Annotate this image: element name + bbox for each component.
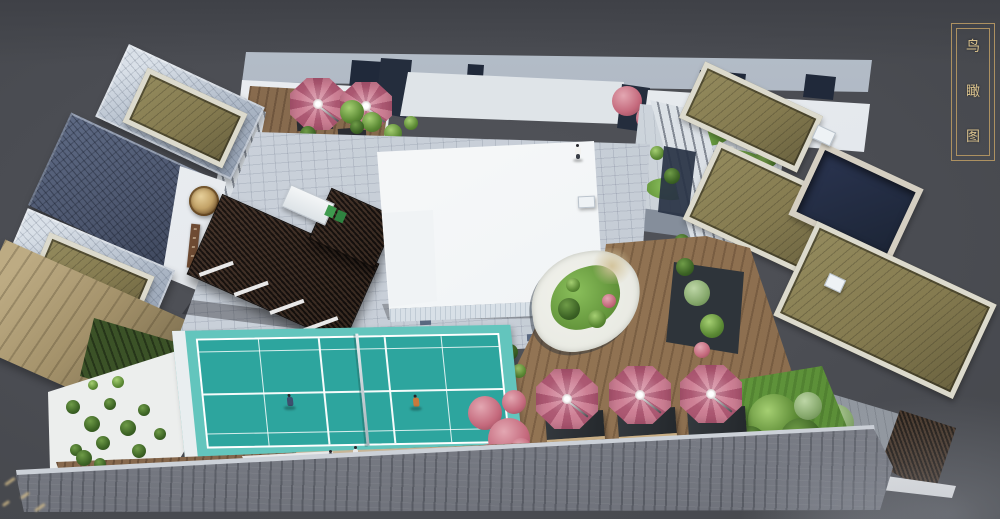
badminton-court (172, 325, 524, 461)
shrub (362, 112, 382, 132)
title-plaque: 鸟 瞰 图 (951, 23, 995, 161)
shrub (588, 310, 606, 328)
vine (154, 428, 166, 440)
pink-shrub (694, 342, 710, 358)
vine (66, 400, 80, 414)
player (284, 394, 296, 410)
vine (138, 404, 150, 416)
court-line (207, 428, 507, 434)
large-tree (794, 392, 822, 420)
pink-parasol (609, 366, 671, 424)
vine (120, 420, 136, 436)
ornamental-grass (590, 248, 634, 284)
court-playing-area (196, 333, 511, 449)
vine (84, 416, 100, 432)
shrub (676, 258, 694, 276)
vine (104, 398, 116, 410)
court-line (203, 388, 503, 395)
birdseye-render: 鸟 瞰 图 (0, 0, 1000, 519)
shrub (664, 168, 680, 184)
rooftop-unit (578, 196, 596, 209)
pink-parasol (680, 365, 742, 423)
pergola-bench (269, 299, 304, 315)
shrub (684, 280, 710, 306)
pink-tree (502, 390, 526, 414)
plaque-title-char: 鸟 (966, 40, 980, 54)
shrub (76, 450, 92, 466)
player (411, 395, 423, 411)
plaque-title-char: 瞰 (966, 85, 980, 99)
pergola-bench (199, 261, 234, 277)
shrub (558, 298, 580, 320)
vine (112, 376, 124, 388)
shrub (650, 146, 664, 160)
pergola-bench (234, 281, 269, 297)
title-plaque-inner-border: 鸟 瞰 图 (956, 28, 990, 156)
pink-shrub (602, 294, 616, 308)
shrub (350, 120, 364, 134)
vine (88, 380, 98, 390)
vine (96, 436, 110, 450)
shrub (700, 314, 724, 338)
person (573, 144, 583, 162)
plaque-title-char: 图 (966, 130, 980, 144)
vine (132, 444, 146, 458)
shrub (566, 278, 580, 292)
shrub (404, 116, 418, 130)
court-line (199, 346, 499, 352)
